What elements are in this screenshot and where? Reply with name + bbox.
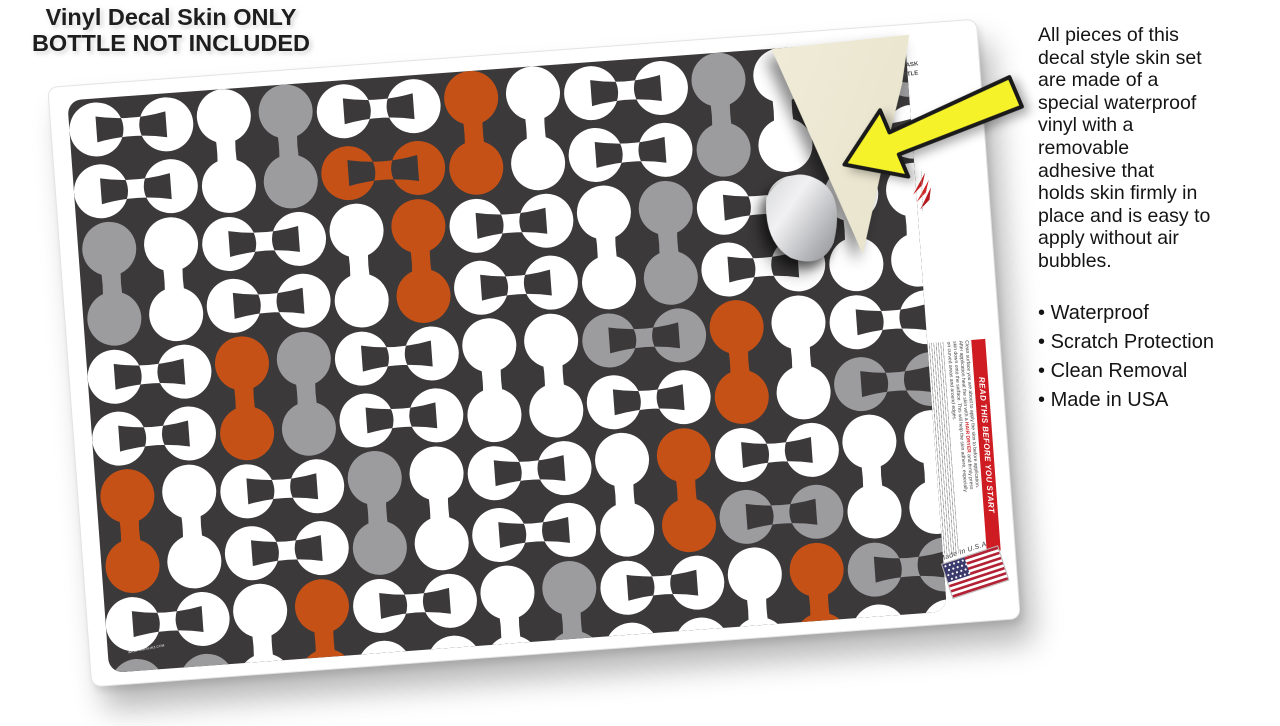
feature-item: Made in USA bbox=[1038, 386, 1250, 415]
feature-list: Waterproof Scratch Protection Clean Remo… bbox=[1038, 299, 1250, 415]
feature-item: Scratch Protection bbox=[1038, 328, 1250, 357]
wraptorskinz-logo-corner: WRAPTORSKINZ.COM bbox=[127, 632, 177, 665]
feature-item: Waterproof bbox=[1038, 299, 1250, 328]
info-paragraph: All pieces of this decal style skin set … bbox=[1038, 24, 1250, 273]
info-panel: All pieces of this decal style skin set … bbox=[1038, 24, 1250, 415]
header-note: Vinyl Decal Skin ONLY BOTTLE NOT INCLUDE… bbox=[6, 5, 336, 57]
header-note-line2: BOTTLE NOT INCLUDED bbox=[6, 31, 336, 57]
feature-item: Clean Removal bbox=[1038, 357, 1250, 386]
header-note-line1: Vinyl Decal Skin ONLY bbox=[6, 5, 336, 31]
